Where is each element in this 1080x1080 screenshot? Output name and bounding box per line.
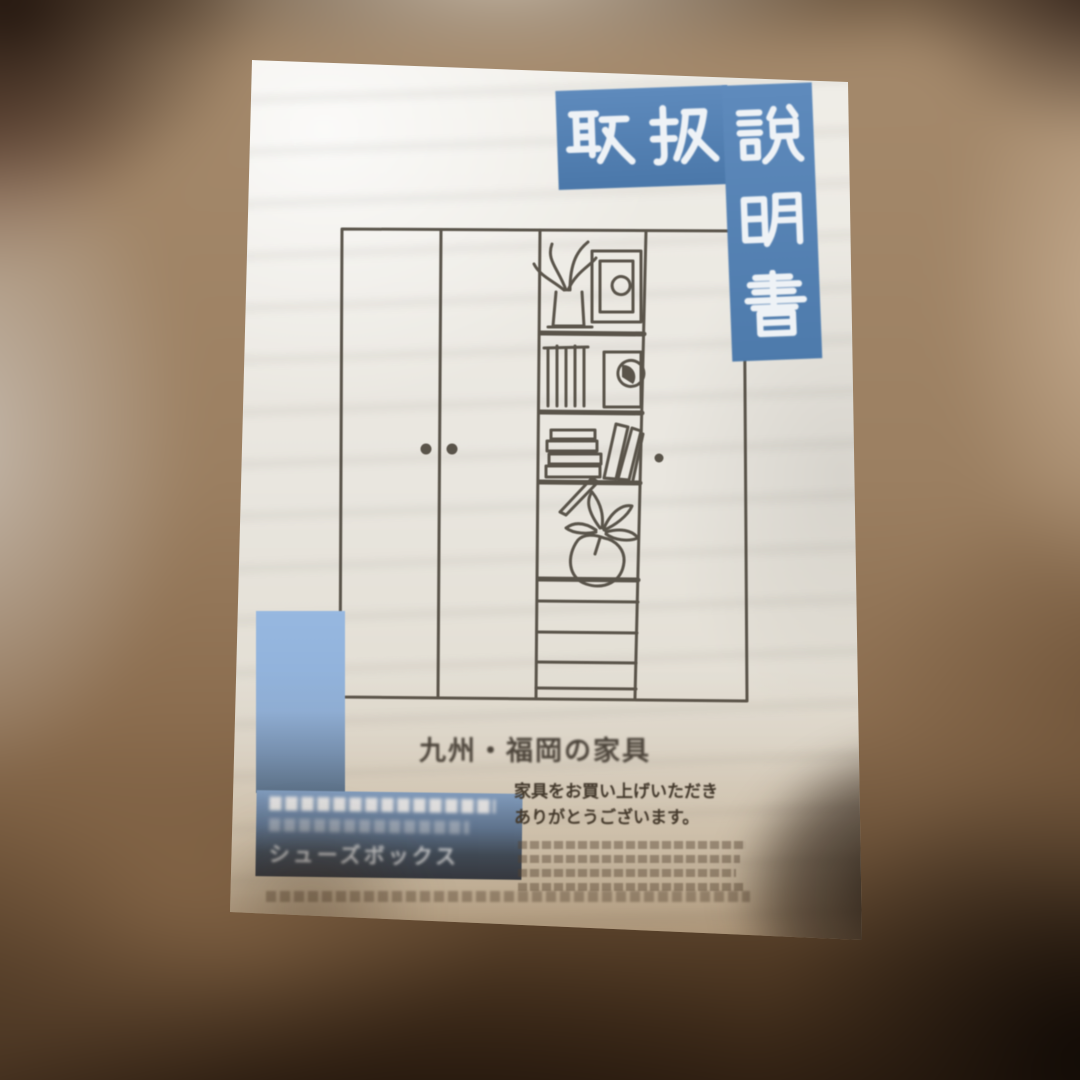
- photo-of-manual: 九州・福岡の家具 シューズボックス 家具をお買い上げいただき ありがとうございま…: [0, 0, 1080, 1080]
